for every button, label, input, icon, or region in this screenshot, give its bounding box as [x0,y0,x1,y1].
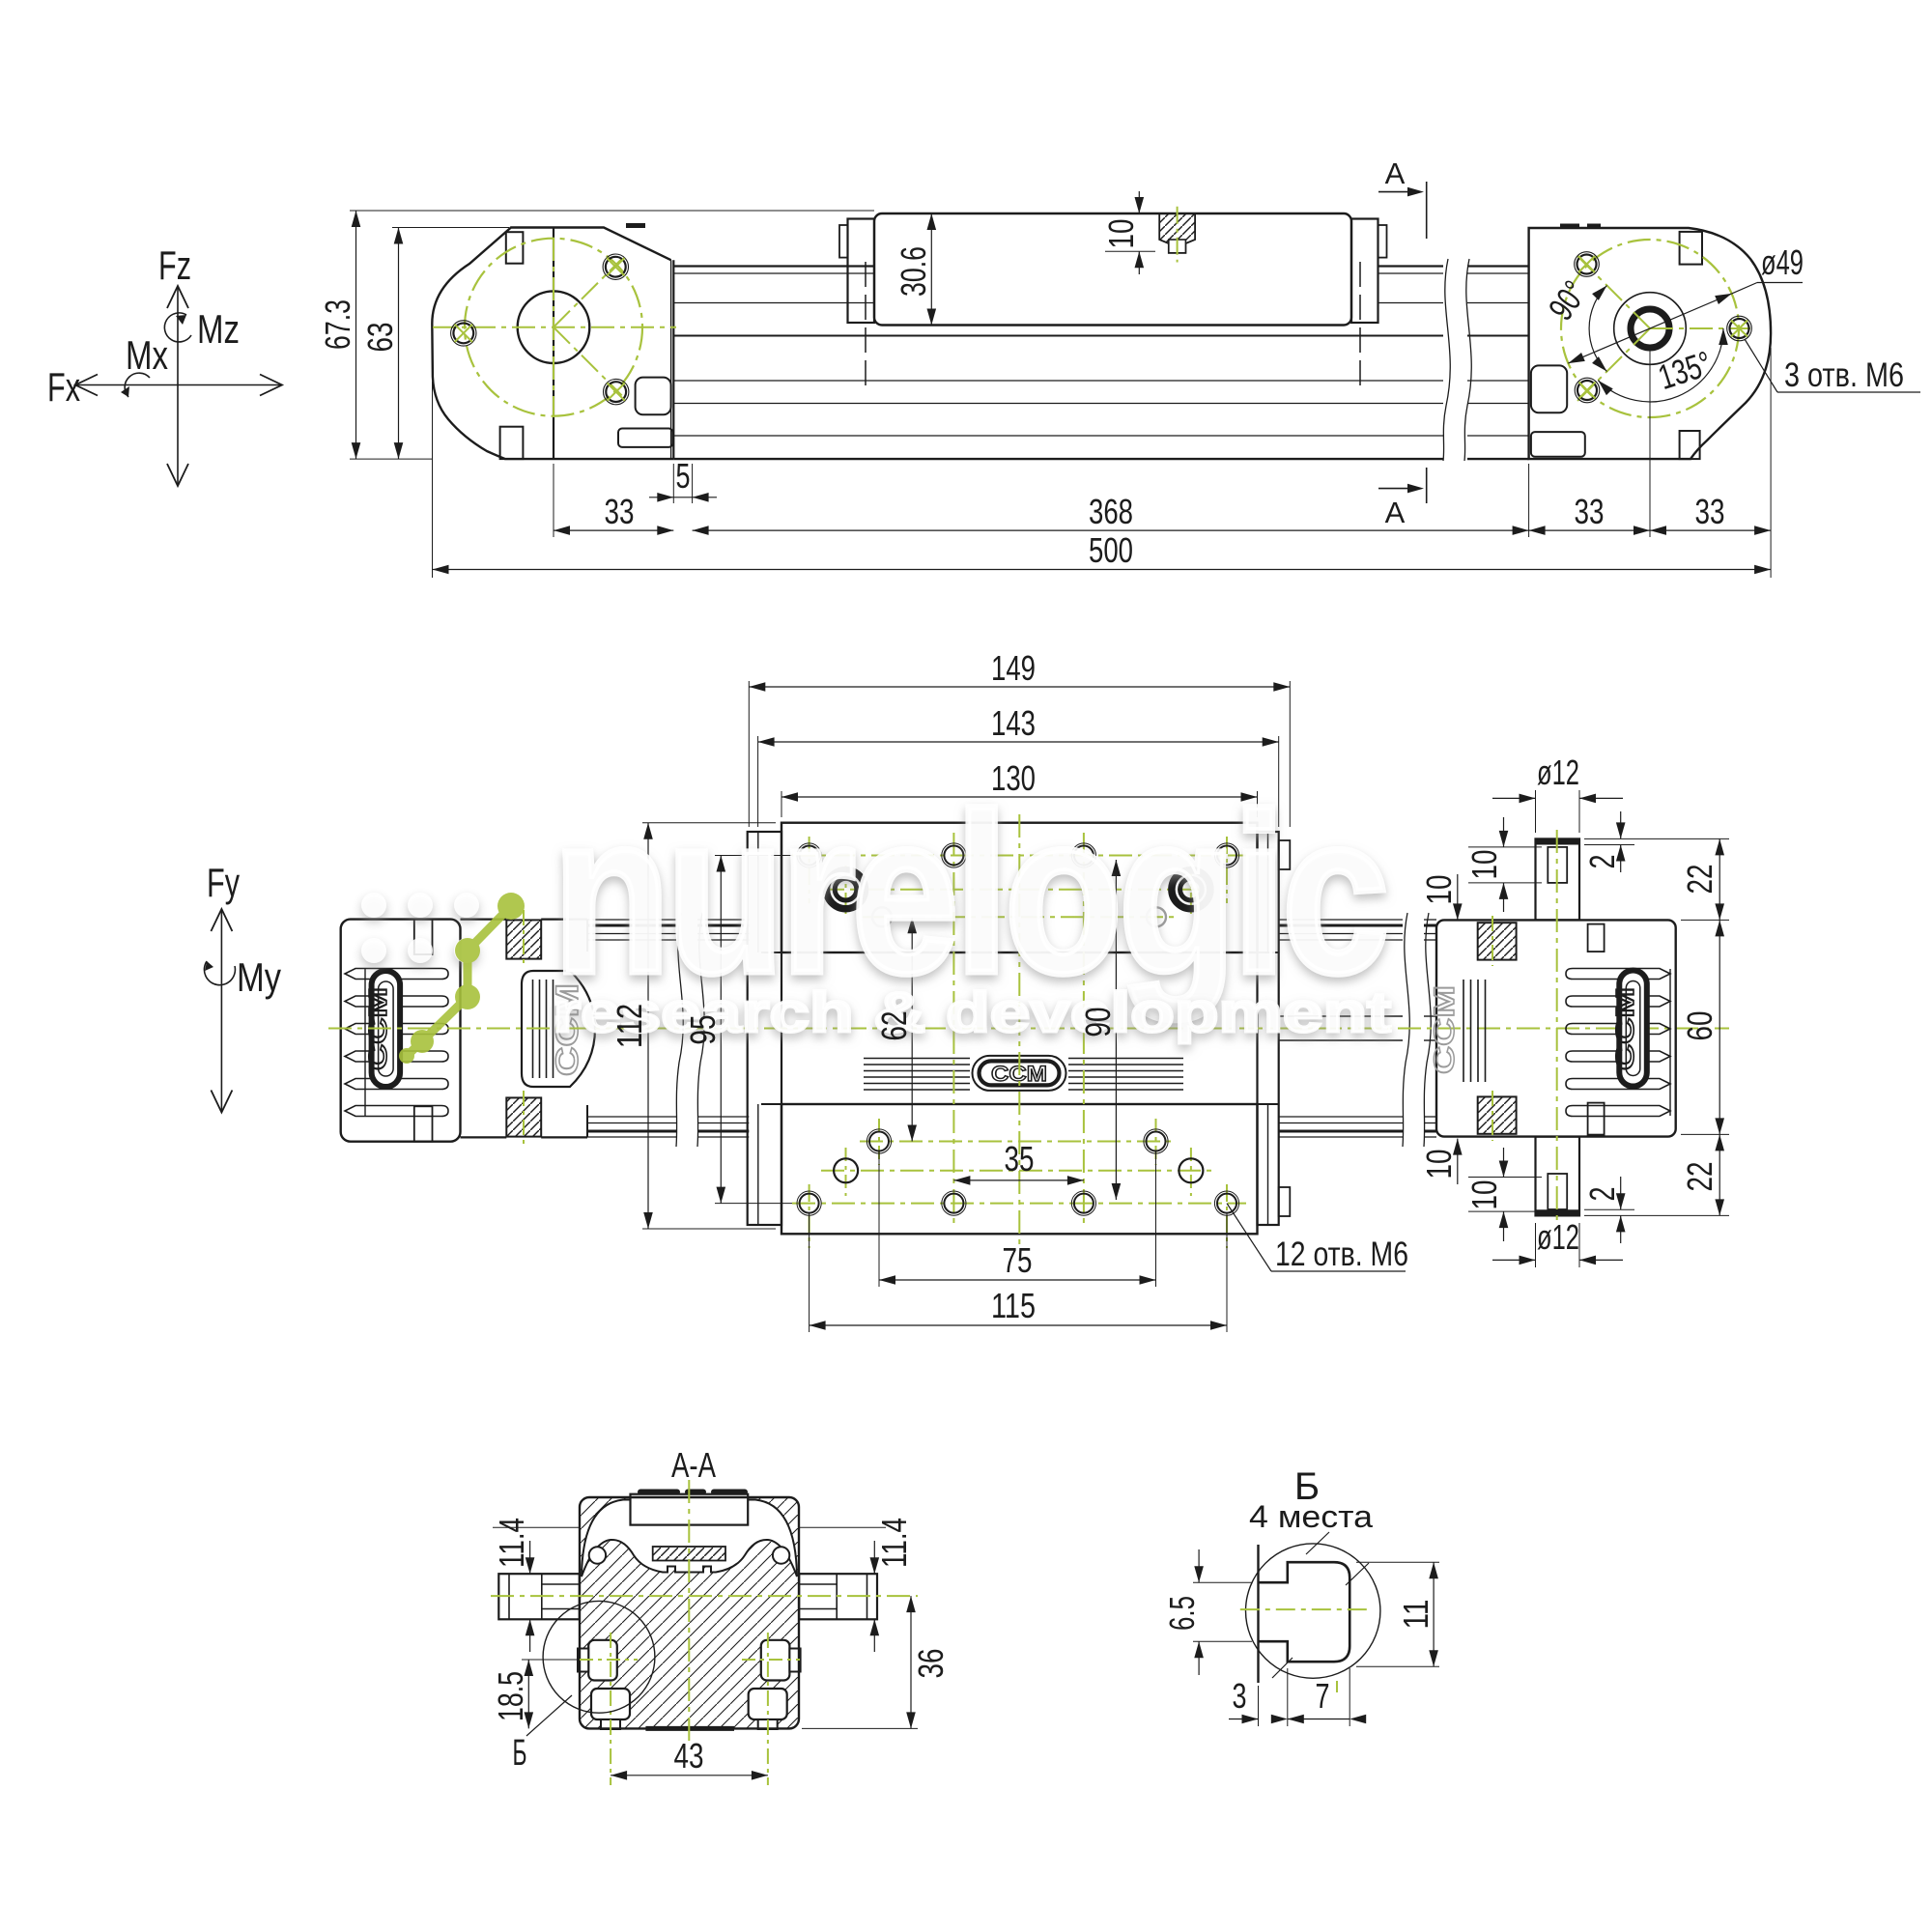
svg-text:115: 115 [991,1286,1036,1325]
svg-text:43: 43 [674,1736,704,1776]
svg-text:My: My [237,954,281,1000]
svg-text:11.4: 11.4 [874,1518,914,1568]
svg-text:A: A [1385,156,1406,190]
svg-text:5: 5 [676,456,691,496]
svg-text:10: 10 [1419,1150,1459,1179]
svg-text:95: 95 [683,1015,723,1045]
svg-text:A: A [1385,496,1406,529]
svg-text:Fx: Fx [47,364,80,410]
svg-text:3: 3 [1233,1676,1247,1716]
svg-text:143: 143 [991,703,1036,743]
svg-text:2: 2 [1582,855,1622,869]
svg-text:ø49: ø49 [1761,242,1804,282]
svg-text:Mx: Mx [126,332,168,378]
svg-text:3 отв. М6: 3 отв. М6 [1784,356,1904,394]
svg-text:11: 11 [1396,1600,1435,1630]
svg-text:12 отв. М6: 12 отв. М6 [1275,1236,1408,1273]
svg-text:11.4: 11.4 [492,1518,531,1568]
svg-text:35: 35 [1005,1139,1035,1179]
svg-text:22: 22 [1680,865,1719,895]
svg-text:10: 10 [1419,875,1459,905]
svg-text:10: 10 [1464,1180,1504,1210]
svg-text:62: 62 [874,1011,914,1041]
svg-text:30.6: 30.6 [894,246,933,297]
svg-text:Fy: Fy [207,860,240,905]
svg-text:10: 10 [1464,850,1504,880]
svg-text:33: 33 [1575,492,1605,531]
svg-text:90: 90 [1078,1008,1118,1037]
svg-text:149: 149 [991,648,1036,688]
svg-text:4 места: 4 места [1249,1499,1373,1534]
svg-text:75: 75 [1003,1240,1033,1280]
svg-text:Mz: Mz [197,306,240,352]
svg-text:112: 112 [610,1004,649,1048]
svg-text:CCM: CCM [1610,987,1639,1070]
svg-text:CCM: CCM [1429,985,1461,1074]
svg-text:2: 2 [1582,1187,1622,1202]
svg-text:A-A: A-A [671,1445,716,1485]
svg-text:60: 60 [1680,1011,1719,1041]
svg-text:67.3: 67.3 [318,299,357,350]
svg-text:Fz: Fz [158,242,191,288]
svg-text:18.5: 18.5 [491,1671,530,1721]
svg-text:36: 36 [911,1649,951,1679]
svg-text:500: 500 [1089,530,1133,570]
svg-text:63: 63 [360,323,400,353]
svg-text:research & development: research & development [553,981,1391,1044]
svg-text:ø12: ø12 [1537,1217,1579,1257]
svg-text:33: 33 [1695,492,1725,531]
svg-text:Б: Б [513,1733,527,1774]
svg-text:368: 368 [1089,492,1133,531]
svg-text:22: 22 [1680,1162,1719,1192]
svg-text:ø12: ø12 [1537,753,1579,792]
svg-text:7: 7 [1316,1676,1330,1716]
svg-text:10: 10 [1101,219,1141,249]
svg-text:33: 33 [605,492,635,531]
svg-text:6.5: 6.5 [1162,1596,1202,1631]
